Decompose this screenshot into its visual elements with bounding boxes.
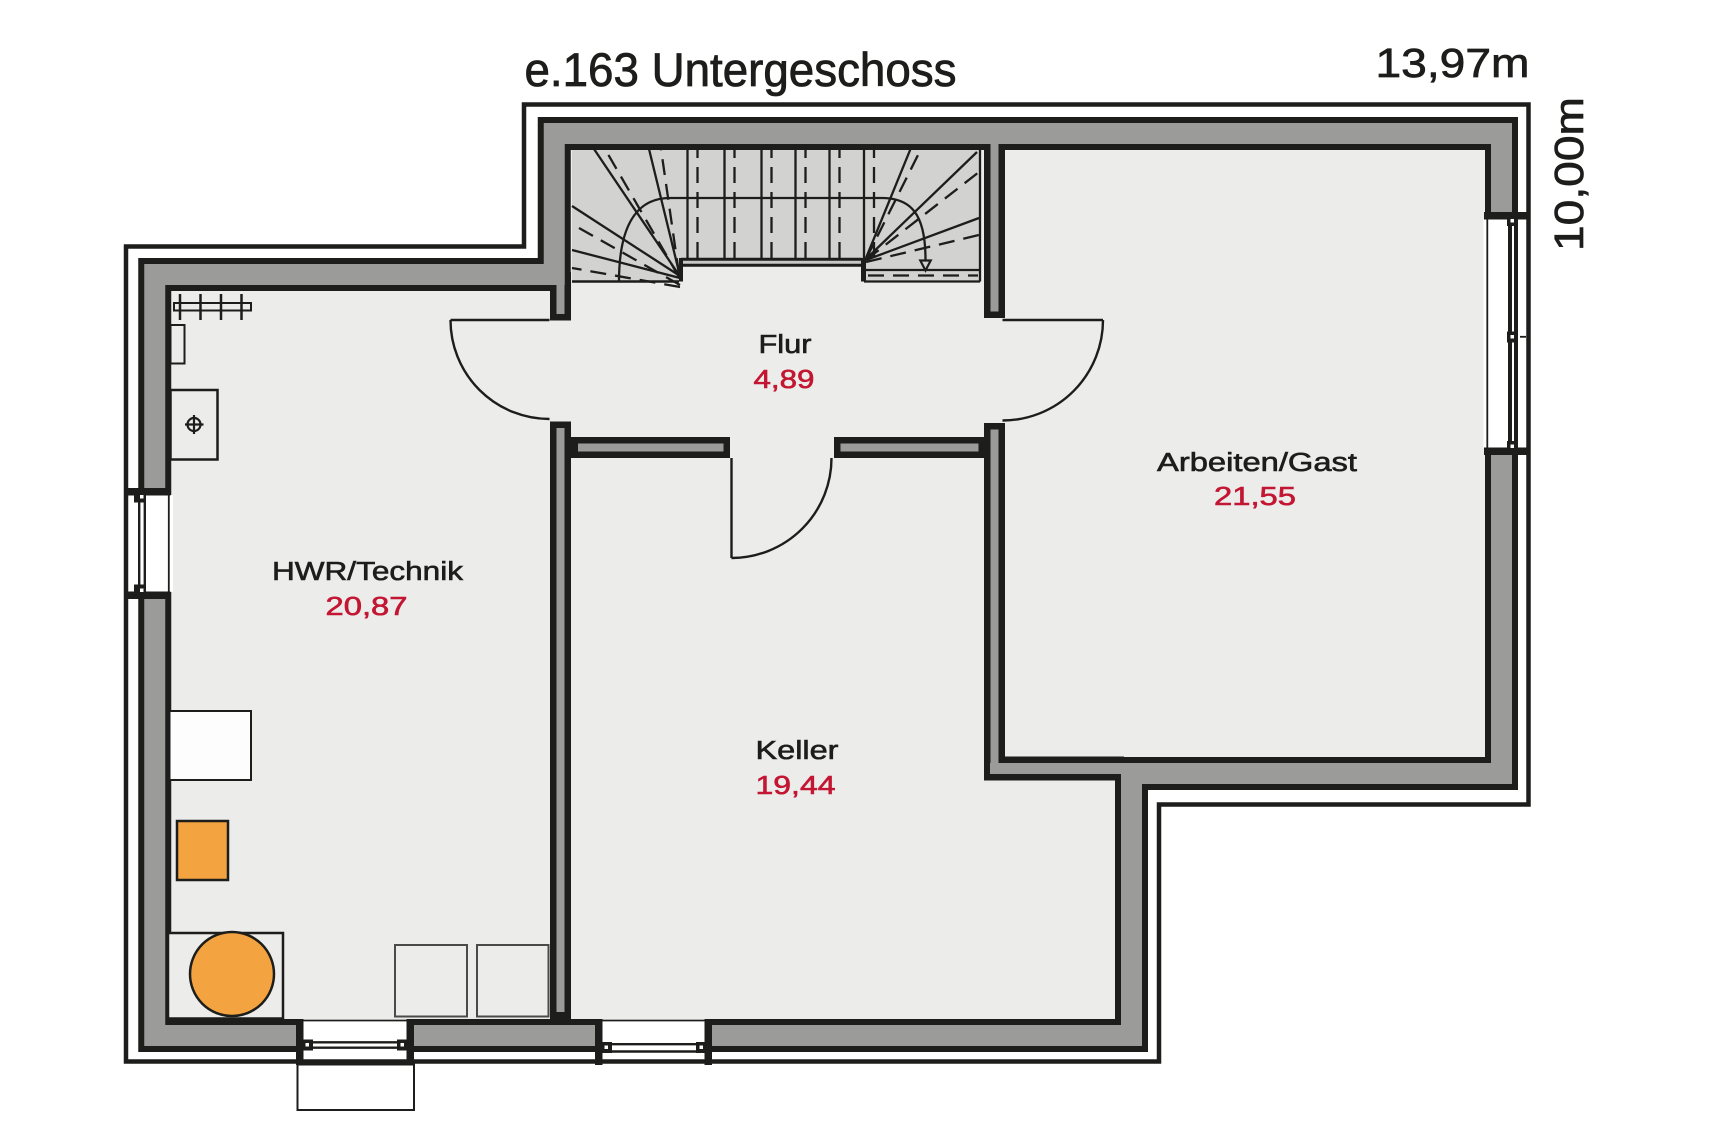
svg-text:Arbeiten/Gast: Arbeiten/Gast (1157, 449, 1357, 477)
svg-text:4,89: 4,89 (754, 366, 815, 394)
svg-text:e.163 Untergeschoss: e.163 Untergeschoss (525, 43, 957, 96)
svg-text:19,44: 19,44 (756, 772, 836, 800)
svg-text:20,87: 20,87 (326, 593, 408, 621)
svg-text:Keller: Keller (756, 737, 840, 765)
svg-text:Flur: Flur (759, 331, 813, 359)
svg-text:HWR/Technik: HWR/Technik (272, 558, 463, 586)
svg-text:21,55: 21,55 (1214, 483, 1296, 511)
svg-text:13,97m: 13,97m (1376, 40, 1530, 86)
svg-text:10,00m: 10,00m (1546, 97, 1592, 251)
